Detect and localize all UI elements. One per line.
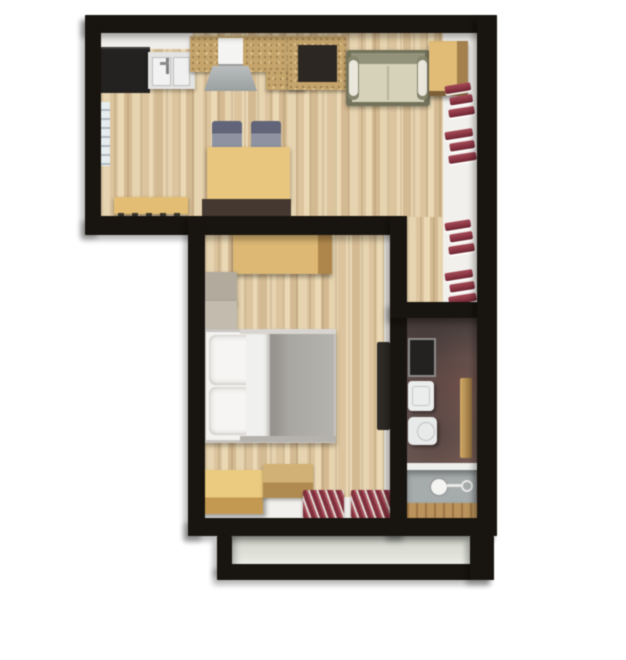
wooden-chest <box>200 470 263 514</box>
sofa-armrest-right <box>417 56 428 100</box>
wash-basin <box>408 381 434 411</box>
basin-bowl <box>412 386 430 406</box>
wall-bedroom-left <box>188 216 205 536</box>
floor-plan-canvas <box>0 0 626 660</box>
armrest-cushion <box>418 60 427 96</box>
balcony-floor <box>232 536 470 566</box>
bathroom-wood-strip <box>407 501 477 518</box>
red-item <box>449 140 475 152</box>
red-item <box>449 94 473 105</box>
wall-top <box>85 15 497 33</box>
bed-sheet <box>246 331 272 441</box>
wall-balcony-right <box>470 536 494 580</box>
wall-bedroom-right <box>390 216 407 536</box>
tub-drain <box>431 479 447 495</box>
dining-table <box>207 147 290 203</box>
bed-frame-bar <box>240 329 336 334</box>
sofa-armrest-left <box>348 56 359 100</box>
sofa <box>346 50 430 106</box>
desk-opening <box>298 45 337 82</box>
door-leaf <box>377 342 390 430</box>
wall-bottom <box>188 518 497 536</box>
island-hob <box>218 38 243 67</box>
duvet <box>270 331 334 441</box>
wall-right <box>477 15 497 536</box>
storage-box <box>204 301 237 332</box>
wall-left <box>85 15 101 233</box>
bar-chair <box>204 66 257 91</box>
wall-balcony-bottom <box>217 564 494 580</box>
bench <box>114 197 188 214</box>
double-bed <box>204 329 336 443</box>
red-shelf-stack <box>444 82 475 122</box>
red-item <box>449 281 475 293</box>
kitchen-counter <box>101 47 150 93</box>
toilet-seat <box>417 422 435 441</box>
faucet-spout-icon <box>160 62 169 65</box>
bathtub <box>407 470 477 503</box>
toilet <box>408 417 437 445</box>
red-item <box>448 243 475 255</box>
tub-faucet-ring-icon <box>461 480 473 492</box>
red-mat <box>351 490 394 518</box>
red-item <box>448 152 477 164</box>
kitchen-sink <box>148 52 195 89</box>
bathtub-rim <box>407 463 477 470</box>
apartment-floor-plan <box>0 0 626 660</box>
bedroom-desk <box>233 234 332 274</box>
red-item <box>448 106 475 118</box>
towel-rail <box>460 378 472 458</box>
red-shelf-stack <box>444 219 475 259</box>
wall-middle <box>85 216 407 235</box>
red-shelf-stack <box>444 128 477 168</box>
armrest-cushion <box>349 60 358 96</box>
mirror-cabinet <box>408 338 436 377</box>
bed-frame-bar <box>240 436 336 442</box>
storage-box <box>202 272 237 304</box>
wall-desk <box>288 36 346 90</box>
sink-drainboard <box>173 57 190 86</box>
sofa-seat-divider <box>387 66 389 100</box>
red-mat <box>303 490 344 518</box>
faucet-icon <box>166 58 169 74</box>
red-item <box>449 231 473 242</box>
